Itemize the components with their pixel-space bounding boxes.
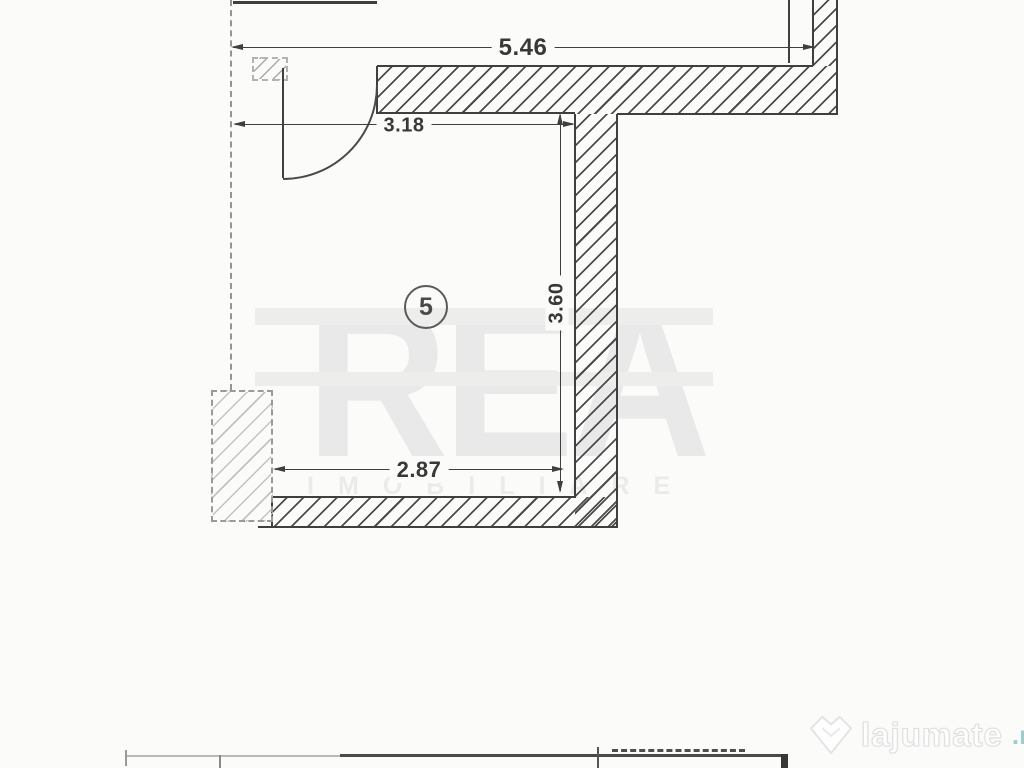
- logo-tld: .ro: [1012, 720, 1024, 751]
- logo-name: lajumate: [861, 716, 1003, 754]
- extension-line: [788, 0, 790, 63]
- wall-outline: [617, 113, 837, 115]
- room-number: 5: [419, 293, 433, 322]
- door-swing-arc: [283, 85, 378, 180]
- wall-outline: [272, 496, 575, 498]
- room-number-badge: 5: [404, 285, 448, 329]
- wall-outline: [616, 114, 618, 527]
- wall-outline: [812, 0, 814, 66]
- pillar: [211, 390, 273, 522]
- dimension-label-right: 3.60: [546, 276, 569, 331]
- dimension-label-door: 3.18: [377, 115, 432, 138]
- wall-outline: [574, 114, 576, 498]
- arrow-left-icon: [233, 121, 245, 127]
- wall-outline: [836, 0, 838, 115]
- wall-bottom: [272, 497, 617, 527]
- lajumate-logo: lajumate.ro: [808, 714, 1024, 756]
- arrow-left-icon: [273, 466, 285, 472]
- fragment-tick: [597, 747, 599, 768]
- arrow-right-icon: [803, 44, 815, 50]
- fragment-tick: [125, 750, 127, 766]
- fragment-line: [126, 755, 340, 757]
- wall-right-exterior: [813, 0, 837, 66]
- floor-plan-image: REA IMOBILIARE 5.46 3.18 3.60: [0, 0, 1024, 768]
- fragment-tick: [219, 755, 221, 768]
- dimension-label-bottom: 2.87: [390, 457, 449, 483]
- arrow-down-icon: [557, 481, 563, 493]
- wall-outline: [258, 526, 618, 528]
- arrow-up-icon: [557, 113, 563, 125]
- fragment-dashed-line: [612, 749, 745, 752]
- wall-room-right: [575, 114, 617, 527]
- wall-top: [377, 66, 837, 114]
- wall-outline: [377, 65, 813, 67]
- wall-outline: [233, 1, 377, 4]
- fragment-line: [340, 754, 788, 757]
- watermark-stripe: [255, 308, 713, 325]
- lajumate-heart-icon: [808, 714, 854, 756]
- fragment-corner: [781, 754, 788, 768]
- arrow-right-icon: [563, 121, 575, 127]
- axis-dashed-line: [230, 0, 232, 390]
- dimension-label-top: 5.46: [492, 34, 555, 62]
- arrow-left-icon: [231, 44, 243, 50]
- watermark-stripe: [255, 372, 713, 386]
- arrow-right-icon: [552, 466, 564, 472]
